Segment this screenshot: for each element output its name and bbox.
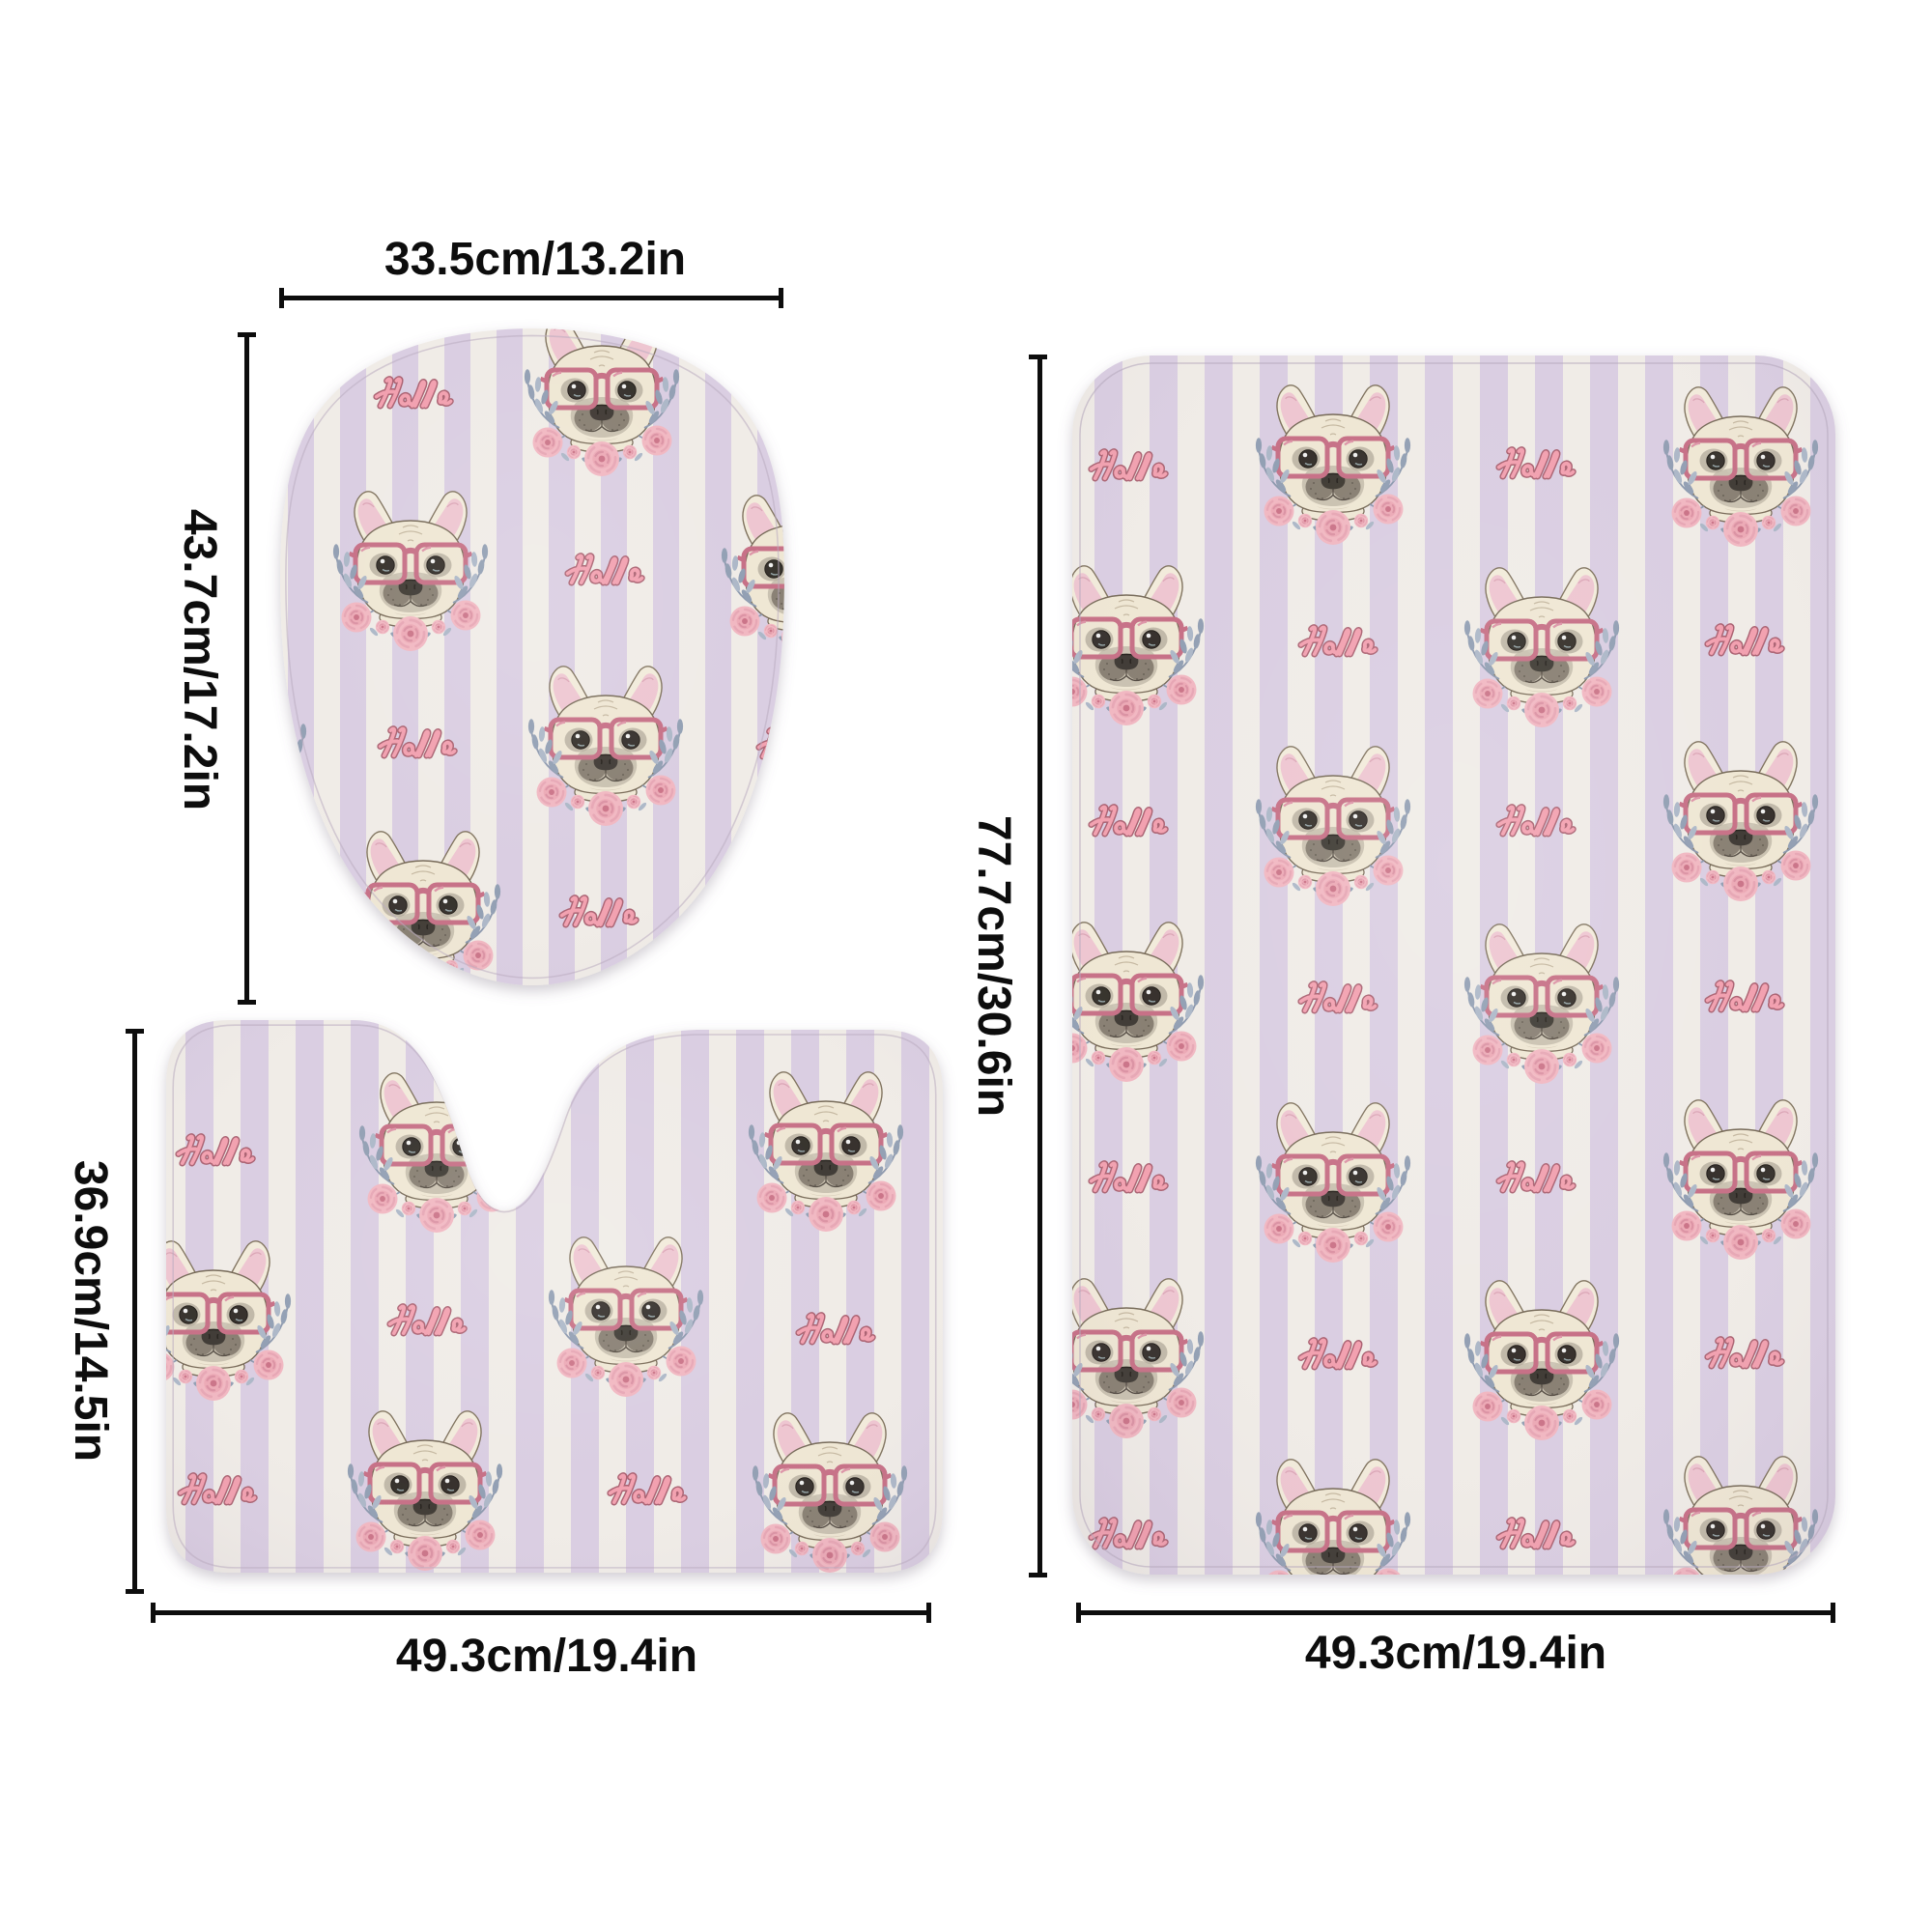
svg-text:33.5cm/13.2in: 33.5cm/13.2in — [384, 234, 686, 285]
svg-text:77.7cm/30.6in: 77.7cm/30.6in — [968, 815, 1019, 1117]
svg-text:43.7cm/17.2in: 43.7cm/17.2in — [174, 509, 225, 810]
svg-text:49.3cm/19.4in: 49.3cm/19.4in — [1305, 1628, 1606, 1679]
svg-text:49.3cm/19.4in: 49.3cm/19.4in — [396, 1631, 697, 1682]
svg-text:36.9cm/14.5in: 36.9cm/14.5in — [65, 1160, 116, 1462]
